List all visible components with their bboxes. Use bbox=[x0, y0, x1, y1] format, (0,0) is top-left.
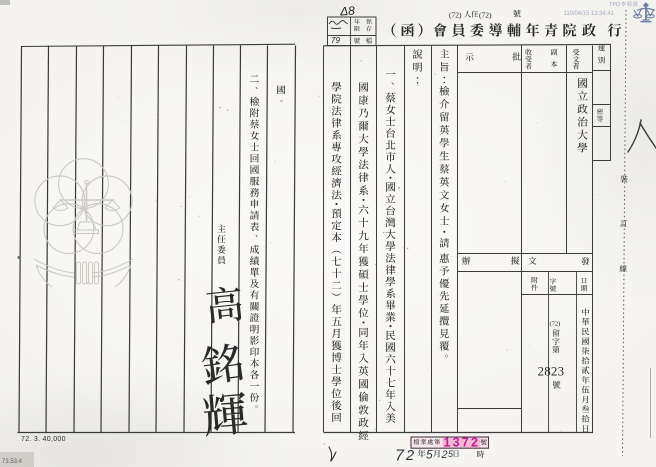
svg-text:Δ8: Δ8 bbox=[339, 4, 356, 19]
svg-text:110/04/15 13:34:41: 110/04/15 13:34:41 bbox=[564, 10, 615, 17]
svg-text:2: 2 bbox=[405, 448, 414, 464]
svg-text:5: 5 bbox=[448, 449, 454, 459]
svg-text:7: 7 bbox=[395, 448, 405, 465]
svg-text:5: 5 bbox=[426, 448, 433, 462]
svg-text:72. 3. 40,000: 72. 3. 40,000 bbox=[21, 436, 66, 443]
svg-text:2: 2 bbox=[441, 449, 448, 461]
svg-text:(72): (72) bbox=[550, 321, 561, 328]
svg-text:TPD: TPD bbox=[609, 2, 620, 8]
svg-text:(72): (72) bbox=[449, 11, 462, 20]
svg-text:73.53.4: 73.53.4 bbox=[2, 459, 23, 465]
svg-text:(72): (72) bbox=[479, 11, 492, 20]
svg-text:2823: 2823 bbox=[538, 364, 565, 379]
svg-text:1372: 1372 bbox=[444, 436, 481, 450]
svg-text:79: 79 bbox=[331, 36, 340, 45]
